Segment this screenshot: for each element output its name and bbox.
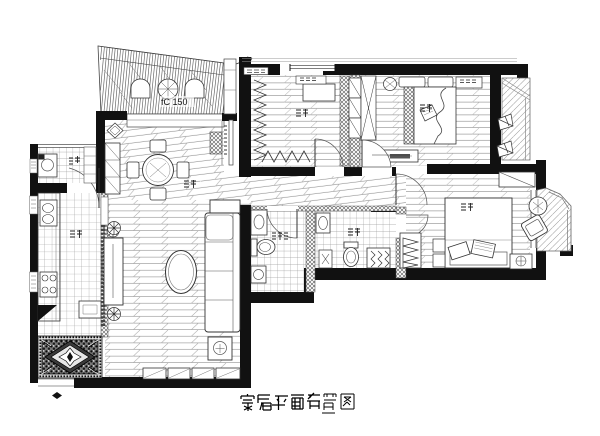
svg-text:fC 150: fC 150 [161,97,188,107]
